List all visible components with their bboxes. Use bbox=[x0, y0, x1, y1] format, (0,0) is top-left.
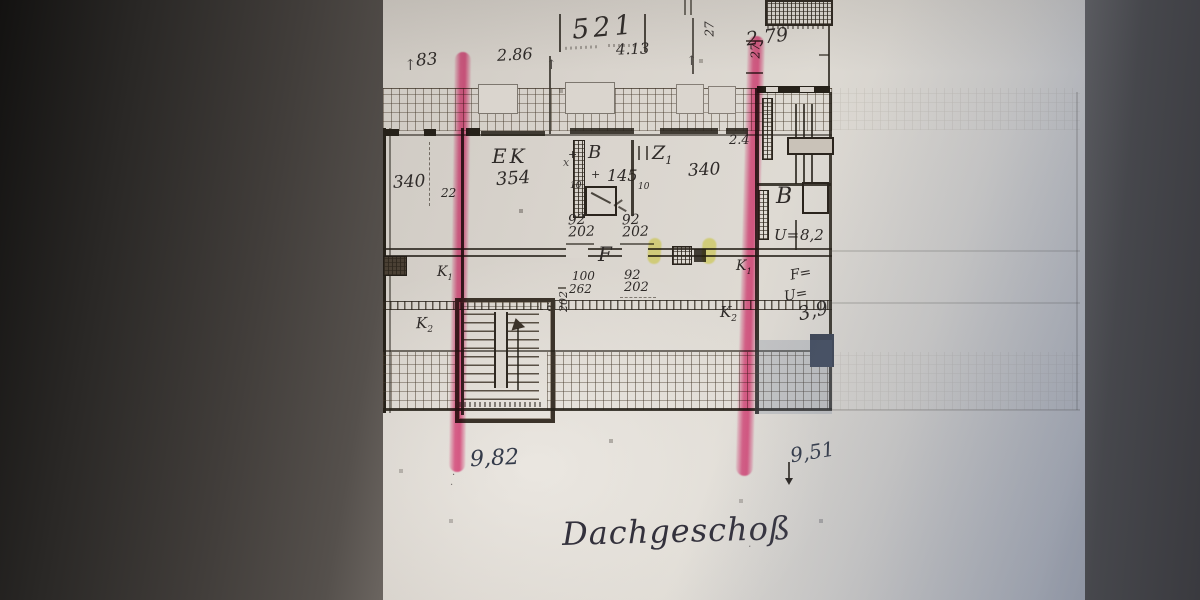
yellow-highlight bbox=[647, 238, 662, 265]
door-opening bbox=[622, 247, 648, 258]
wall-faint bbox=[832, 302, 1080, 304]
room-area-ek: 354 bbox=[495, 167, 531, 190]
room-area-z1: 340 bbox=[687, 159, 720, 181]
dormer-notch bbox=[708, 86, 736, 114]
beam-box bbox=[787, 137, 834, 155]
bracket-left bbox=[559, 14, 561, 52]
band-bottom-line-faint bbox=[832, 409, 1080, 411]
paper-speckles bbox=[0, 0, 2, 2]
window-gap bbox=[800, 87, 814, 92]
u-value-8-2: 8,2 bbox=[800, 226, 824, 244]
photo-dark-left-band bbox=[0, 0, 383, 600]
pencil-mark: · bbox=[748, 540, 752, 553]
stamp-micro-text bbox=[767, 25, 827, 29]
window-gap bbox=[766, 87, 778, 92]
dim-arrow-icon: ↑ bbox=[404, 56, 417, 74]
dim-10: 10 bbox=[638, 182, 649, 192]
stair-arrow-line bbox=[517, 328, 519, 390]
dim-2-86: 2.86 bbox=[497, 44, 534, 65]
dim-arrow-icon: ↑ bbox=[546, 58, 557, 73]
floorplan-photo: ↑ 83 2.86 ↑ 521 4.13 ↑ 27 2,79 27 bbox=[0, 0, 1200, 600]
right-room-label-b: B bbox=[776, 184, 792, 209]
dim-100: 100 bbox=[572, 269, 595, 283]
hall-label-f: F bbox=[598, 242, 612, 266]
dim-tick bbox=[819, 54, 829, 56]
dashed-partition bbox=[429, 142, 430, 206]
door-dim: 92202 bbox=[622, 214, 650, 239]
dim-262: 262 bbox=[569, 282, 592, 296]
dash-line bbox=[620, 297, 656, 298]
floor-title: Dachgeschoß bbox=[562, 509, 792, 553]
label-k1-left: K1 bbox=[437, 264, 453, 282]
chimney-block bbox=[383, 256, 407, 276]
dim-27-top: 27 bbox=[703, 21, 717, 36]
label-k2-left: K2 bbox=[416, 314, 434, 336]
tick bbox=[638, 146, 640, 160]
wall-segment bbox=[660, 128, 718, 134]
dash bbox=[558, 287, 566, 289]
wall-line bbox=[828, 26, 830, 90]
right-unit-wall bbox=[762, 98, 773, 160]
dim-83: 83 bbox=[415, 49, 438, 70]
wall-line bbox=[684, 0, 686, 15]
photo-dark-right-band bbox=[1085, 0, 1200, 600]
underline bbox=[566, 243, 594, 245]
bottom-hatch-left bbox=[383, 352, 455, 410]
door-dim: 92202 bbox=[624, 270, 649, 294]
room-area-left: 340 bbox=[392, 171, 425, 193]
room-label-bath: B bbox=[588, 142, 601, 163]
dim-10: 10 bbox=[570, 181, 581, 191]
stamp-hatch-box bbox=[765, 0, 833, 26]
dim-4-13: 4.13 bbox=[616, 39, 650, 58]
tick bbox=[646, 146, 648, 160]
dim-arrow-icon: ↑ bbox=[686, 54, 697, 69]
room-label-ek: EK bbox=[492, 144, 528, 168]
dormer-notch bbox=[676, 84, 704, 114]
shadow-tint bbox=[755, 340, 832, 414]
roof-hatch-band-faint bbox=[832, 88, 1080, 130]
divider-line bbox=[795, 220, 797, 250]
right-fixture-box bbox=[802, 182, 829, 214]
x-mark: x bbox=[563, 156, 569, 169]
shower-box bbox=[585, 186, 617, 216]
plus-mark: + bbox=[591, 168, 600, 181]
bottom-hatch-faint bbox=[832, 352, 1080, 410]
plus-mark: + bbox=[568, 148, 577, 161]
wall-pier bbox=[424, 129, 436, 136]
dormer-notch bbox=[565, 82, 615, 114]
stair-micro-text bbox=[459, 402, 543, 407]
wall-faint bbox=[832, 250, 1080, 252]
pencil-mark: · bbox=[450, 480, 453, 491]
yellow-highlight bbox=[701, 238, 717, 265]
door-block bbox=[672, 246, 692, 265]
down-arrowhead bbox=[785, 478, 793, 485]
room-label-z1: Z1 bbox=[652, 142, 672, 167]
door-opening bbox=[566, 247, 588, 258]
dim-9-82: 9,82 bbox=[469, 445, 519, 473]
wall-segment bbox=[481, 131, 545, 136]
wall-line bbox=[690, 0, 692, 15]
wall-segment bbox=[570, 128, 634, 134]
partition-wall bbox=[631, 140, 634, 216]
door-dim: 92202 bbox=[568, 214, 596, 239]
dormer-notch bbox=[478, 84, 518, 114]
label-k2-right: K2 bbox=[720, 303, 737, 324]
